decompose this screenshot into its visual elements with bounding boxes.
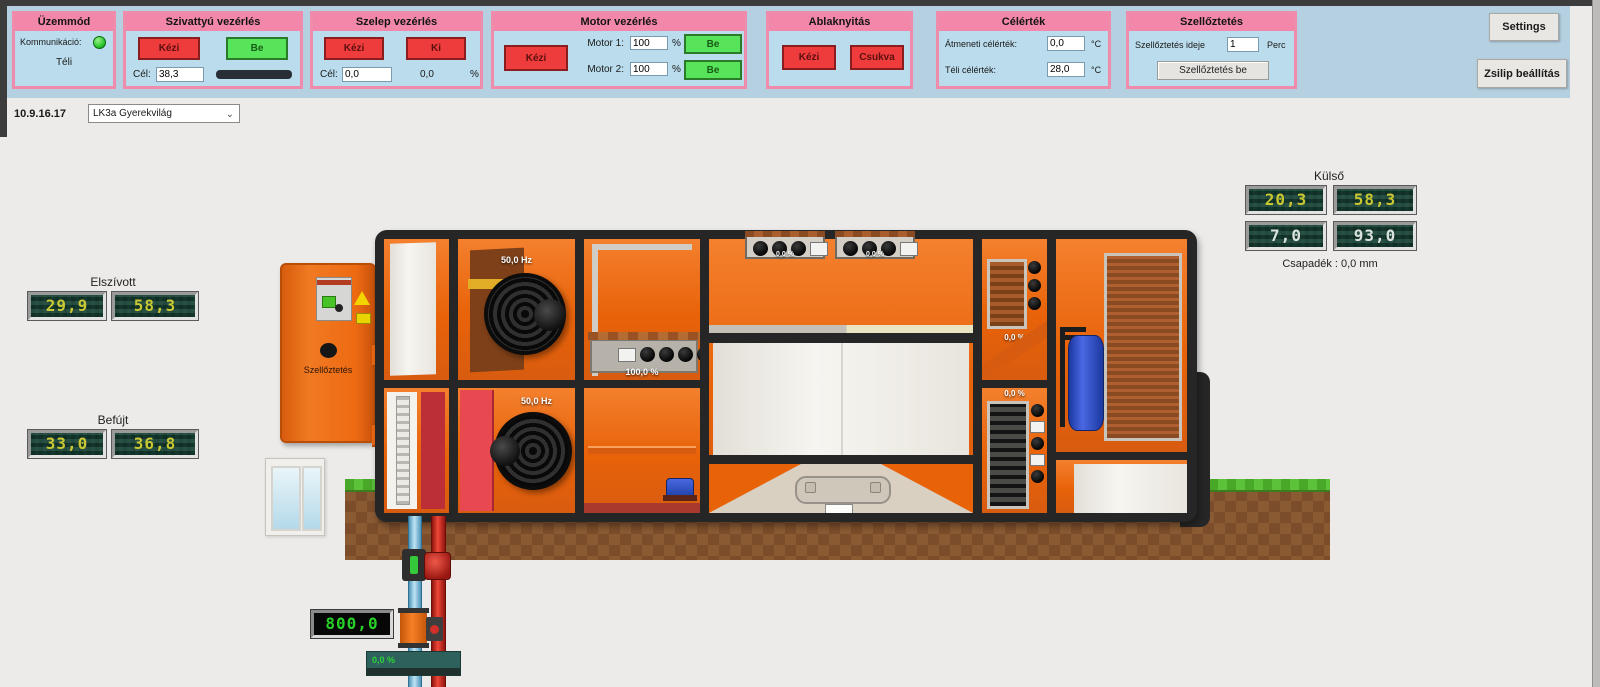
cell-intake-bottom <box>384 388 449 513</box>
red-panel <box>421 392 445 509</box>
window-pane-left <box>271 466 301 531</box>
red-pump <box>424 552 451 580</box>
valve-actuator <box>426 617 443 641</box>
szell-ideje-label: Szellőztetés ideje <box>1135 40 1205 50</box>
zsilip-button[interactable]: Zsilip beállítás <box>1477 59 1567 88</box>
warning-triangle-icon <box>354 291 370 305</box>
filter-slab <box>390 242 436 376</box>
fan-bottom-label: 50,0 Hz <box>478 396 575 406</box>
cabinet-panel-strip <box>317 280 351 285</box>
valve-position-bar: 0,0 % <box>366 651 461 676</box>
valve-position-value: 0,0 % <box>372 655 395 665</box>
motor1-unit: % <box>672 38 681 49</box>
elszivott-temp-display: 29,9 <box>28 292 106 320</box>
roof-damper-right: 0,0 % <box>835 231 915 259</box>
settings-button[interactable]: Settings <box>1489 13 1559 41</box>
motor1-input[interactable] <box>630 36 668 50</box>
ablak-kezi-button[interactable]: Kézi <box>782 45 836 70</box>
panel-szelloztetes-title: Szellőztetés <box>1129 14 1294 31</box>
szell-ideje-input[interactable] <box>1227 37 1259 52</box>
outlet-filter-block <box>1074 464 1187 513</box>
panel-ablak-title: Ablaknyitás <box>769 14 910 31</box>
cabinet-display-panel <box>316 277 352 321</box>
cabinet-panel-dot <box>335 304 343 312</box>
window-right-border <box>1592 0 1600 687</box>
mode-value: Téli <box>15 57 113 68</box>
cell-recup: 100,0 % <box>584 239 700 380</box>
szelep-position-value: 0,0 <box>420 69 434 80</box>
fan-top-label: 50,0 Hz <box>458 255 575 265</box>
cell-middle <box>709 239 973 513</box>
mid-beam-top <box>709 333 973 343</box>
motor2-label: Motor 2: <box>580 64 624 75</box>
csapadek-label: Csapadék : 0,0 mm <box>1236 258 1424 270</box>
komm-label: Kommunikáció: <box>20 37 82 47</box>
cell-coil <box>1056 239 1187 452</box>
cabinet-panel-led <box>322 296 336 308</box>
ip-address: 10.9.16.17 <box>14 108 66 120</box>
befujt-humidity-display: 36,8 <box>112 430 198 458</box>
pan-slope-left <box>709 464 801 513</box>
mid-beam-bottom <box>709 455 973 464</box>
panel-szelep-title: Szelep vezérlés <box>313 14 480 31</box>
szelep-ki-button[interactable]: Ki <box>406 37 466 60</box>
motor1-be-button[interactable]: Be <box>684 34 742 54</box>
teli-label: Téli célérték: <box>945 65 996 75</box>
fan-bottom-graphic <box>494 412 572 490</box>
cell-intake-top <box>384 239 449 380</box>
panel-celertek-title: Célérték <box>939 14 1108 31</box>
red-door <box>460 390 494 511</box>
teli-input[interactable] <box>1047 62 1085 77</box>
drain-box <box>825 504 853 513</box>
atmeneti-unit: °C <box>1091 39 1101 49</box>
recup-actuator <box>618 348 636 362</box>
device-select[interactable]: LK3a Gyerekvilág ⌄ <box>88 104 240 123</box>
szelep-kezi-button[interactable]: Kézi <box>324 37 384 60</box>
cell-fan-bottom: 50,0 Hz <box>458 388 575 513</box>
flow-display: 800,0 <box>311 610 393 638</box>
damper-right-bottom-label: 0,0 % <box>982 389 1047 398</box>
motor2-input[interactable] <box>630 62 668 76</box>
motor2-be-button[interactable]: Be <box>684 60 742 80</box>
cell-fan-top: 50,0 Hz <box>458 239 575 380</box>
cabinet-knob[interactable] <box>320 343 337 358</box>
szivattyu-cel-input[interactable] <box>156 67 204 82</box>
window-pane-right <box>302 466 322 531</box>
motor2-unit: % <box>672 64 681 75</box>
szivattyu-cel-label: Cél: <box>133 69 151 80</box>
panel-uzemmod-title: Üzemmód <box>15 14 113 31</box>
befujt-temp-display: 33,0 <box>28 430 106 458</box>
window-left-border <box>0 0 7 137</box>
szell-be-button[interactable]: Szellőztetés be <box>1157 61 1269 80</box>
cell-outlet <box>1056 460 1187 513</box>
damper-slats-top <box>987 259 1027 329</box>
drain-pan <box>709 464 973 513</box>
motor-kezi-button[interactable]: Kézi <box>504 45 568 71</box>
air-handling-unit: 50,0 Hz 50,0 Hz 100,0 % <box>375 230 1197 522</box>
fan-top-graphic <box>484 273 566 355</box>
chevron-down-icon: ⌄ <box>226 106 234 123</box>
atmeneti-label: Átmeneti célérték: <box>945 39 1017 49</box>
roof-damper-left-label: 0,0 % <box>747 251 823 258</box>
szelep-cel-input[interactable] <box>342 67 392 82</box>
warning-sticker <box>356 313 371 324</box>
ablak-csukva-button[interactable]: Csukva <box>850 45 904 70</box>
silencer-graphic <box>795 476 891 504</box>
recuperator-label: 100,0 % <box>584 367 700 377</box>
panel-motor-title: Motor vezérlés <box>494 14 744 31</box>
roof-damper-left: 0,0 % <box>745 231 825 259</box>
komm-status-led <box>93 36 106 49</box>
damper-slats-bottom <box>987 401 1029 509</box>
panel-szelep: Szelep vezérlés Kézi Ki Cél: 0,0 % <box>310 11 483 89</box>
panel-celertek: Célérték Átmeneti célérték: °C Téli célé… <box>936 11 1111 89</box>
motor1-label: Motor 1: <box>580 38 624 49</box>
roof-damper-right-label: 0,0 % <box>837 251 913 258</box>
intake-grille <box>387 392 417 509</box>
elszivott-label: Elszívott <box>30 275 196 289</box>
atmeneti-input[interactable] <box>1047 36 1085 51</box>
control-cabinet: Szellőztetés <box>280 263 376 443</box>
szelep-cel-label: Cél: <box>320 69 338 80</box>
green-valve <box>402 549 426 581</box>
orange-valve <box>400 608 427 648</box>
panel-szelloztetes: Szellőztetés Szellőztetés ideje Perc Sze… <box>1126 11 1297 89</box>
blue-barrel <box>1068 335 1104 431</box>
panel-motor: Motor vezérlés Kézi Motor 1: % Be Motor … <box>491 11 747 89</box>
pump-graphic <box>666 478 694 498</box>
panel-ablak: Ablaknyitás Kézi Csukva <box>766 11 913 89</box>
panel-szivattyu: Szivattyú vezérlés Kézi Be Cél: <box>123 11 303 89</box>
panel-uzemmod: Üzemmód Kommunikáció: Téli <box>12 11 116 89</box>
barrel-stand <box>1060 327 1065 427</box>
kulso-label: Külső <box>1246 169 1412 183</box>
szell-perc-label: Perc <box>1267 40 1286 50</box>
szivattyu-kezi-button[interactable]: Kézi <box>138 37 200 60</box>
cell-damper-bottom: 0,0 % <box>982 388 1047 513</box>
cell-damper-top: 0,0 % <box>982 239 1047 380</box>
panel-szivattyu-title: Szivattyú vezérlés <box>126 14 300 31</box>
pan-slope-right <box>881 464 973 513</box>
elszivott-humidity-display: 58,3 <box>112 292 198 320</box>
befujt-label: Befújt <box>30 413 196 427</box>
szivattyu-progress-bar <box>216 70 292 79</box>
heat-exchanger-block <box>713 343 969 455</box>
kulso-temp2-display: 7,0 <box>1246 222 1326 250</box>
szelep-unit: % <box>470 69 479 80</box>
kulso-humidity2-display: 93,0 <box>1334 222 1416 250</box>
kulso-humidity-display: 58,3 <box>1334 186 1416 214</box>
window-graphic <box>265 458 325 536</box>
teli-unit: °C <box>1091 65 1101 75</box>
kulso-temp-display: 20,3 <box>1246 186 1326 214</box>
cell-recup-bottom <box>584 388 700 513</box>
shelf-line <box>588 446 696 454</box>
szivattyu-be-button[interactable]: Be <box>226 37 288 60</box>
red-floor <box>584 503 700 513</box>
heating-coil <box>1104 253 1182 441</box>
device-select-value: LK3a Gyerekvilág <box>93 108 172 119</box>
cabinet-label: Szellőztetés <box>282 365 374 375</box>
frame-rail <box>592 244 692 250</box>
